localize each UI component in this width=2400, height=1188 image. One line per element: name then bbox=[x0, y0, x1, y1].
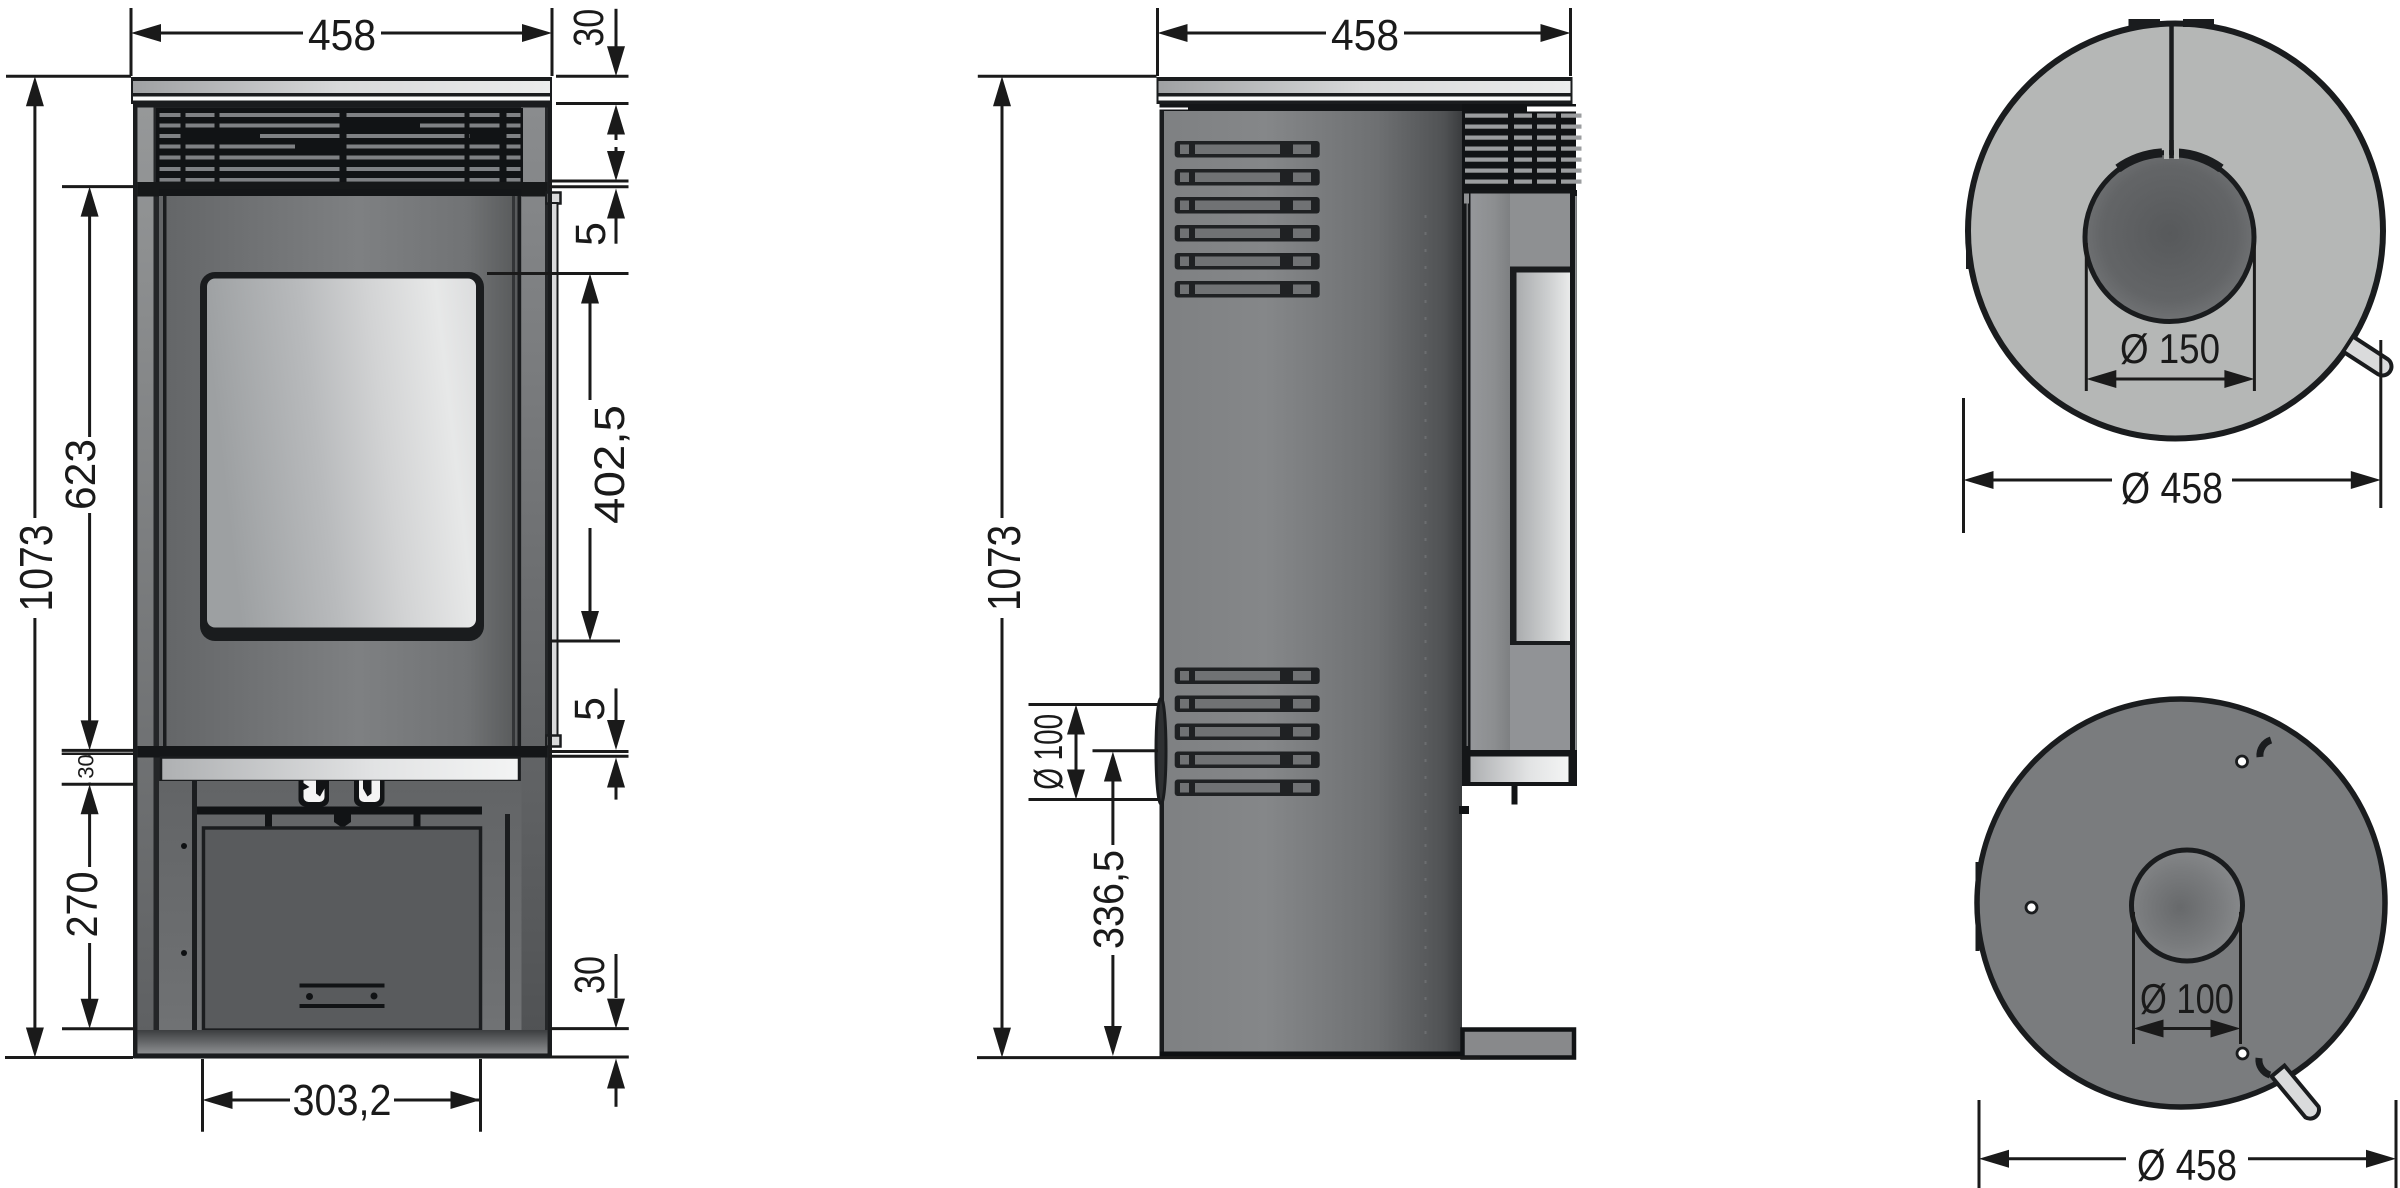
svg-text:303,2: 303,2 bbox=[293, 1076, 392, 1125]
svg-text:Ø 100: Ø 100 bbox=[1027, 714, 1071, 790]
svg-text:458: 458 bbox=[1331, 11, 1399, 60]
svg-text:5: 5 bbox=[566, 697, 614, 721]
svg-text:458: 458 bbox=[308, 11, 376, 60]
svg-text:336,5: 336,5 bbox=[1085, 850, 1133, 949]
svg-text:623: 623 bbox=[57, 439, 105, 510]
svg-text:Ø 150: Ø 150 bbox=[2120, 325, 2220, 372]
svg-text:Ø 458: Ø 458 bbox=[2137, 1141, 2237, 1188]
svg-text:Ø 100: Ø 100 bbox=[2140, 975, 2234, 1022]
svg-text:5: 5 bbox=[567, 222, 615, 246]
svg-text:30: 30 bbox=[566, 956, 614, 994]
svg-text:270: 270 bbox=[58, 872, 107, 938]
svg-text:30: 30 bbox=[565, 9, 613, 47]
svg-text:402,5: 402,5 bbox=[586, 405, 634, 524]
svg-text:1073: 1073 bbox=[978, 525, 1030, 611]
svg-text:1073: 1073 bbox=[10, 525, 62, 612]
svg-text:Ø 458: Ø 458 bbox=[2121, 464, 2223, 513]
svg-text:30: 30 bbox=[74, 754, 99, 778]
